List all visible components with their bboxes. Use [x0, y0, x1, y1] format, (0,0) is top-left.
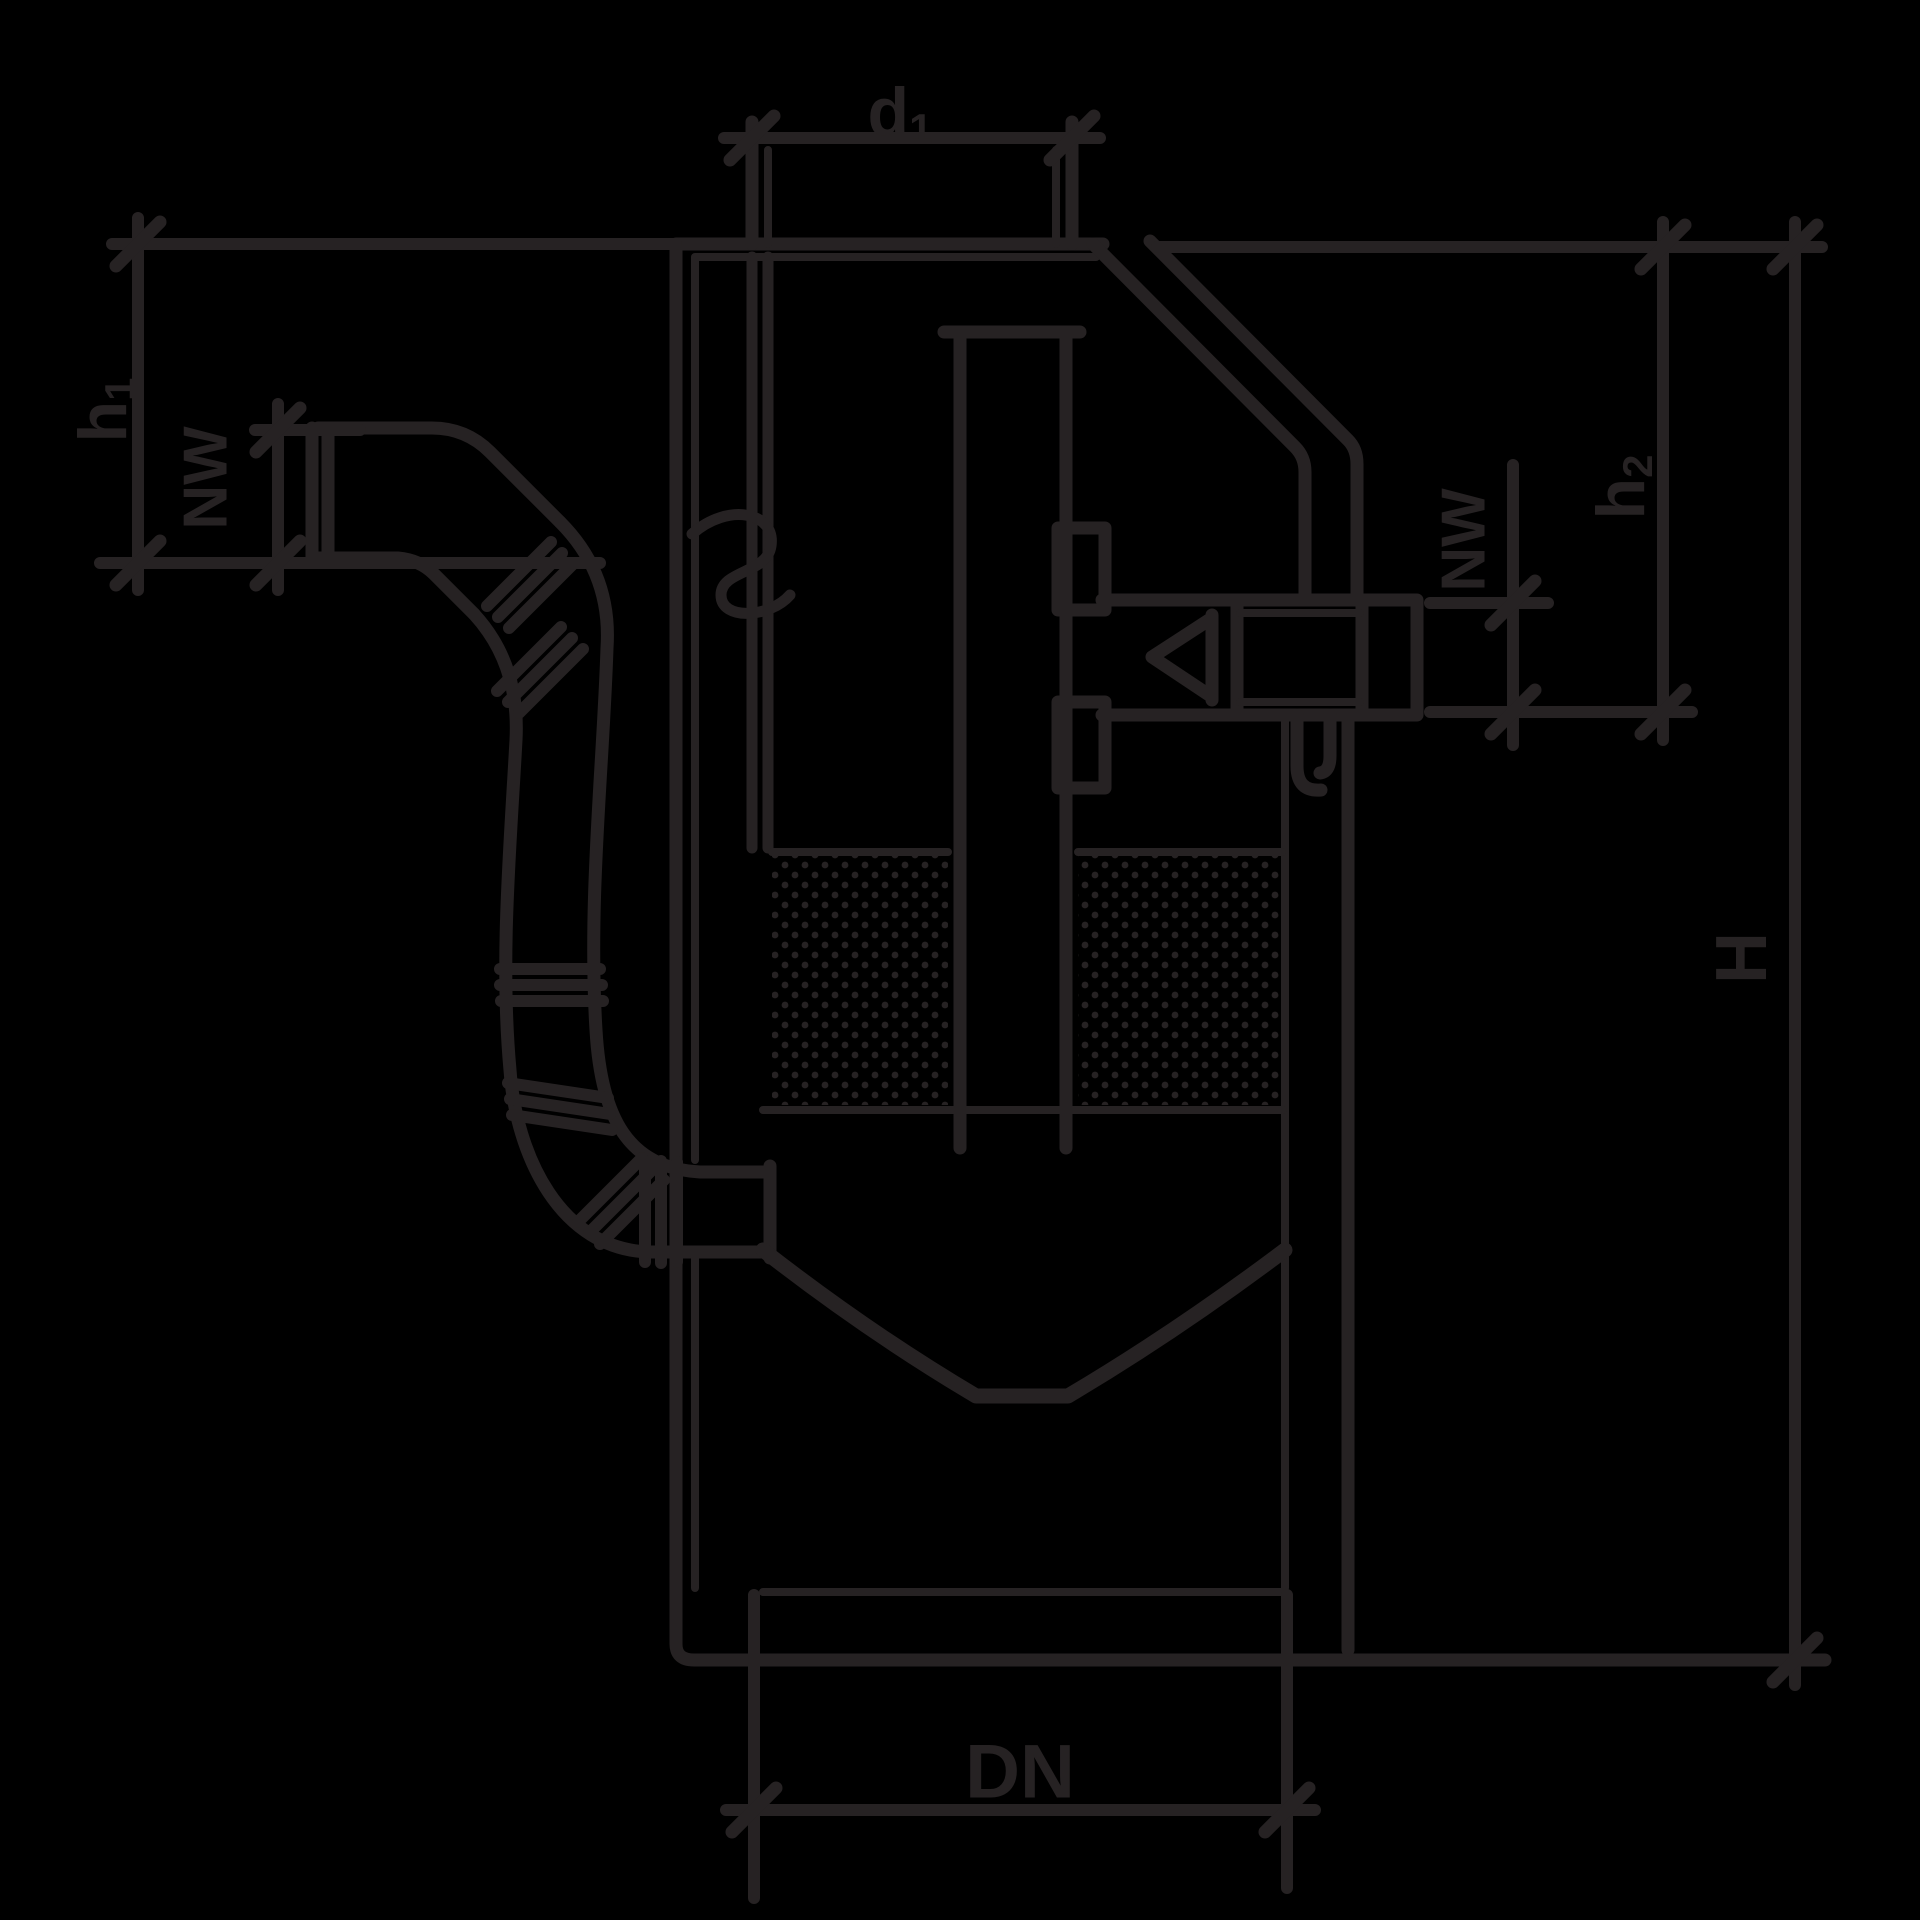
- drawing-canvas: d1 h1 NW NW h2 H DN: [0, 0, 1920, 1920]
- label-h1-base: h: [65, 401, 141, 443]
- label-d1: d1: [868, 74, 933, 152]
- label-h2-sub: 2: [1614, 455, 1661, 478]
- chute-walls-path: [1093, 241, 1357, 598]
- label-DN: DN: [965, 1730, 1075, 1815]
- label-h2: h2: [1583, 455, 1661, 520]
- drawing-root-group: d1 h1 NW NW h2 H DN: [65, 74, 1825, 1898]
- flex-pipe-outer-wall: [560, 522, 770, 1172]
- label-d1-sub: 1: [909, 105, 932, 152]
- technical-drawing: d1 h1 NW NW h2 H DN: [0, 0, 1920, 1920]
- label-nw-right: NW: [1430, 488, 1499, 592]
- label-h1: h1: [65, 378, 143, 443]
- dim-h1-lines: [100, 218, 676, 590]
- filter-media: [763, 852, 1283, 1110]
- flex-pipe: [474, 522, 770, 1258]
- filter-media-right: [1078, 855, 1282, 1105]
- neck-inner-walls: [768, 150, 1056, 244]
- guide-channel: [692, 257, 790, 848]
- outlet-drain-hook: [1297, 715, 1330, 790]
- label-h1-sub: 1: [96, 378, 143, 401]
- v-deflector: [763, 1250, 1285, 1396]
- check-valve-symbol: [1152, 615, 1212, 700]
- label-nw-left: NW: [172, 426, 241, 530]
- neck-inner-walls-path: [768, 150, 1056, 244]
- dim-h2-lines: [1157, 222, 1822, 740]
- v-deflector-path: [763, 1250, 1285, 1396]
- filter-media-left: [772, 855, 948, 1105]
- pipe-break-squiggle: [692, 515, 790, 614]
- outlet-bore-lines-path: [1240, 613, 1360, 702]
- label-h2-base: h: [1583, 478, 1659, 520]
- label-H: H: [1702, 932, 1782, 984]
- outlet-inner-lines: [1240, 613, 1360, 702]
- outlet-chute: [1093, 241, 1357, 598]
- label-d1-base: d: [868, 74, 910, 150]
